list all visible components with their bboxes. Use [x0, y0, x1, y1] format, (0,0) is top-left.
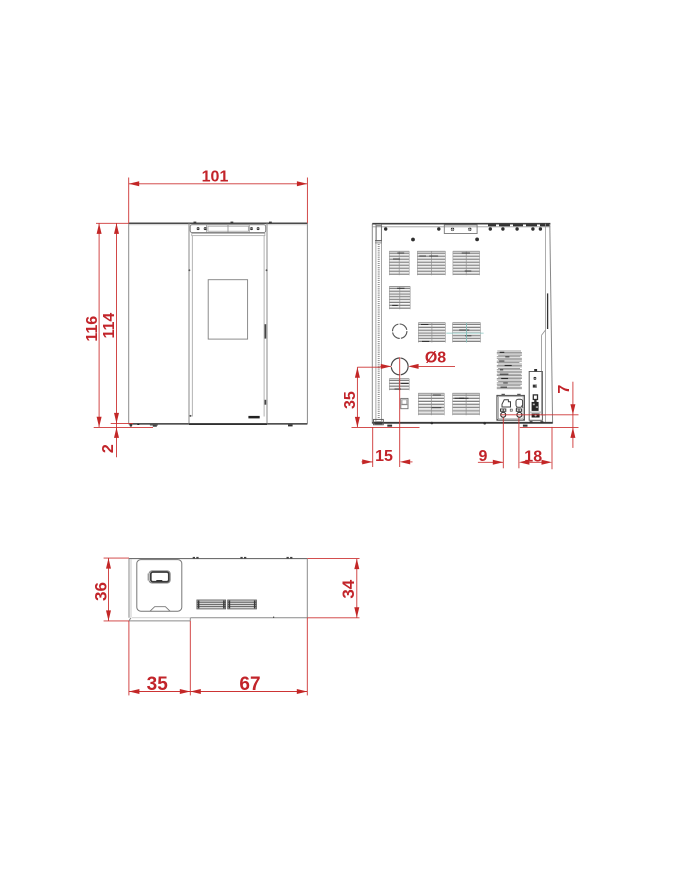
- svg-text:101: 101: [202, 168, 229, 185]
- svg-text:36: 36: [91, 582, 110, 601]
- svg-text:2: 2: [100, 444, 117, 453]
- svg-text:114: 114: [101, 313, 118, 339]
- svg-text:18: 18: [524, 449, 542, 466]
- svg-text:116: 116: [84, 316, 101, 342]
- svg-text:35: 35: [147, 674, 169, 695]
- svg-text:9: 9: [479, 448, 488, 465]
- svg-text:Ø8: Ø8: [425, 350, 446, 367]
- svg-text:34: 34: [339, 579, 358, 598]
- svg-text:7: 7: [556, 385, 573, 394]
- svg-text:35: 35: [342, 391, 359, 409]
- svg-text:67: 67: [239, 674, 260, 695]
- svg-text:15: 15: [375, 448, 393, 465]
